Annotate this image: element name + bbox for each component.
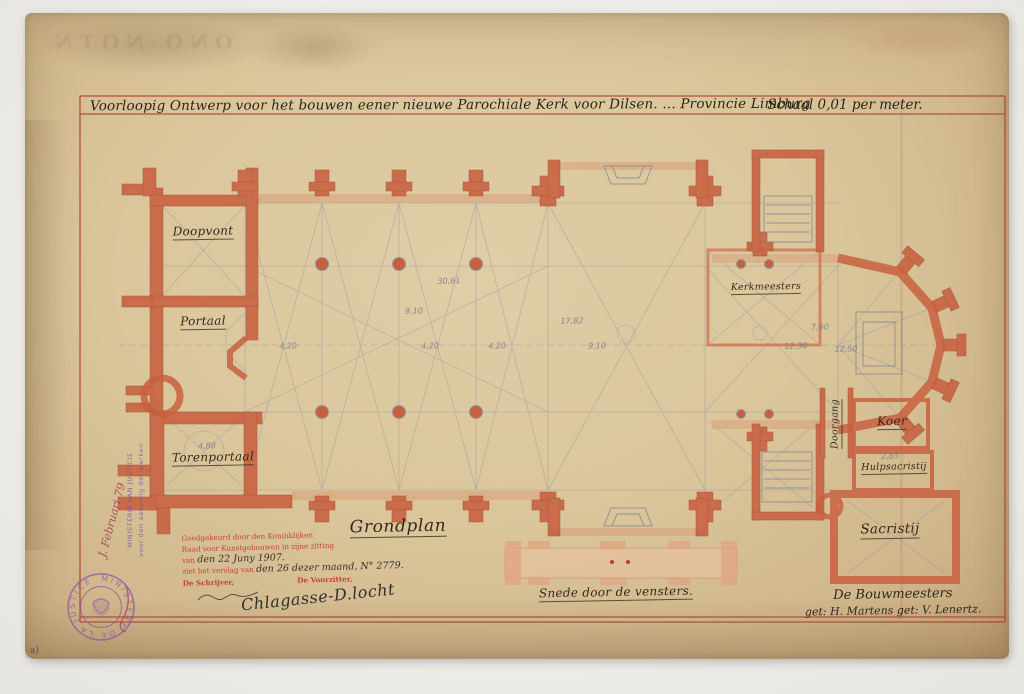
signature-squiggles bbox=[120, 586, 258, 632]
room-label-doopvont: Doopvont bbox=[173, 223, 234, 240]
dimension-label: 30,61 bbox=[437, 276, 460, 285]
architects-block: De Bouwmeesters get: H. Martens get: V. … bbox=[804, 584, 981, 619]
vertical-stamp-line-1: MINISTERIE VAN JUSTICIE bbox=[125, 443, 136, 557]
dimension-label: 12,50 bbox=[834, 344, 857, 353]
approval-line-3-print: van bbox=[182, 556, 195, 565]
room-label-koer: Koer bbox=[877, 414, 907, 431]
section-caption: Snede door de vensters. bbox=[539, 584, 693, 603]
room-label-kerkmeesters: Kerkmeesters bbox=[731, 281, 802, 295]
architects-line-2: get: H. Martens get: V. Lenertz. bbox=[805, 602, 982, 620]
room-label-sacristij: Sacristij bbox=[860, 520, 919, 539]
dimension-label: 4,88 bbox=[198, 441, 216, 450]
sheet-title: Voorloopig Ontwerp voor het bouwen eener… bbox=[90, 96, 811, 115]
dimension-label: 4,20 bbox=[488, 341, 506, 350]
dimension-label: 7,60 bbox=[811, 322, 829, 331]
dimension-label: 4,20 bbox=[421, 341, 439, 350]
ministry-vertical-stamp: MINISTERIE VAN JUSTICIE voor den aanvang… bbox=[125, 443, 147, 557]
dimension-label: 12,30 bbox=[784, 341, 807, 350]
dimension-label: 4,20 bbox=[279, 341, 297, 350]
corner-mark: a) bbox=[30, 646, 39, 656]
clerk-title: De Schrijver, bbox=[182, 576, 234, 589]
scanned-drawing: MINISTERE DE LA JUSTICE Voorloopig Ontwe… bbox=[0, 0, 1024, 694]
room-label-portaal: Portaal bbox=[180, 314, 226, 331]
room-label-doorgang: Doorgang bbox=[830, 399, 843, 449]
scale-note: Schaal 0,01 per meter. bbox=[767, 97, 922, 113]
approval-stamp-block: Goedgekeurd door den Koninklijken Raad v… bbox=[181, 527, 397, 588]
window-section-strip bbox=[505, 541, 737, 585]
dimension-label: 9,10 bbox=[588, 341, 606, 350]
ministry-round-stamp: MINISTERE DE LA JUSTICE bbox=[68, 574, 134, 640]
room-label-torenportaal: Torenportaal bbox=[172, 449, 254, 466]
vertical-stamp-line-2: voor den aanvang der werken bbox=[136, 443, 147, 557]
approval-line-4-print: ziet het verslag van bbox=[182, 565, 254, 576]
dimension-label: 9,10 bbox=[405, 306, 423, 315]
dimension-label: 2,85 bbox=[881, 451, 899, 460]
dimension-label: 17,82 bbox=[560, 316, 583, 325]
room-label-hulpsacristij: Hulpsacristij bbox=[861, 461, 927, 475]
ghost-print: ONO NOTN bbox=[48, 30, 233, 54]
